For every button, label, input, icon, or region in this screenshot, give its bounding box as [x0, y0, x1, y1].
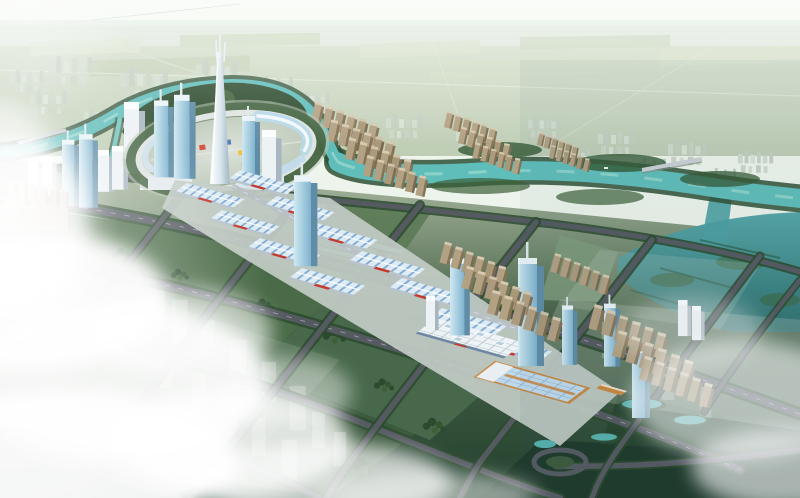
- rendering-canvas: [0, 0, 800, 498]
- city-masterplan-rendering: [0, 0, 800, 498]
